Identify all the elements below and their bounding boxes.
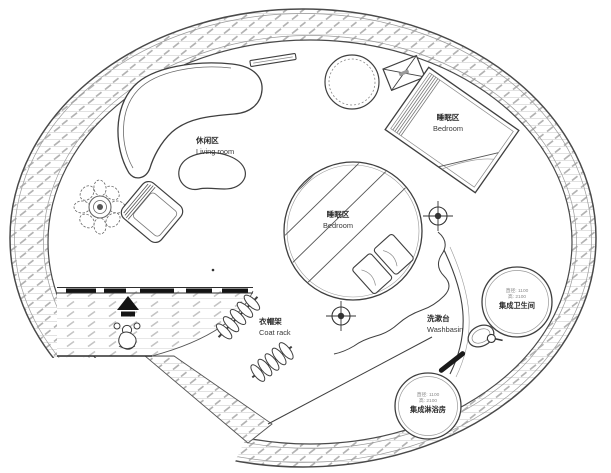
- floor-plan: 休闲区 Living room 睡眠区 Bedroom 睡眠区 Bedroom …: [0, 0, 611, 473]
- ceiling-target-icon: [326, 301, 356, 331]
- bedroom-center-label-zh: 睡眠区: [327, 209, 350, 219]
- shower-pod-label: 集成淋浴房: [409, 405, 446, 414]
- plan-dot: [212, 269, 215, 272]
- coffee-table-icon: [179, 153, 246, 190]
- coat-rack-icon: [246, 339, 298, 386]
- bedroom-platform: [262, 118, 428, 300]
- bedroom-upper-label-zh: 睡眠区: [437, 112, 460, 122]
- shower-pod-spec-height: 高: 2100: [419, 397, 437, 404]
- bathroom-pod-spec-height: 高: 2100: [508, 293, 526, 300]
- bathroom-pod-spec-diameter: 直径: 1100: [506, 287, 529, 294]
- bedroom-center-label-en: Bedroom: [323, 221, 353, 230]
- wall-fixture-icon: [250, 53, 296, 66]
- shower-pod-spec-diameter: 直径: 1100: [417, 391, 440, 398]
- living-room-label-en: Living room: [196, 147, 234, 156]
- round-table-icon: [325, 55, 379, 109]
- deck-terrace: [57, 291, 253, 356]
- bathroom-pod-label: 集成卫生间: [498, 301, 535, 310]
- coat-rack-label-zh: 衣帽架: [259, 316, 282, 326]
- ceiling-target-icon: [423, 201, 453, 231]
- coat-rack-label-en: Coat rack: [259, 328, 291, 337]
- washbasin-label-en: Washbasin: [427, 325, 463, 334]
- floor-plan-drawing: 休闲区 Living room 睡眠区 Bedroom 睡眠区 Bedroom …: [0, 0, 611, 473]
- bedroom-upper-label-en: Bedroom: [433, 124, 463, 133]
- ring-cutout: [0, 358, 245, 473]
- armchair-icon: [118, 178, 186, 245]
- living-room-label-zh: 休闲区: [195, 135, 219, 145]
- window-wall: [57, 288, 253, 294]
- washbasin-label-zh: 洗漱台: [427, 313, 450, 323]
- plant-icon: [74, 179, 125, 234]
